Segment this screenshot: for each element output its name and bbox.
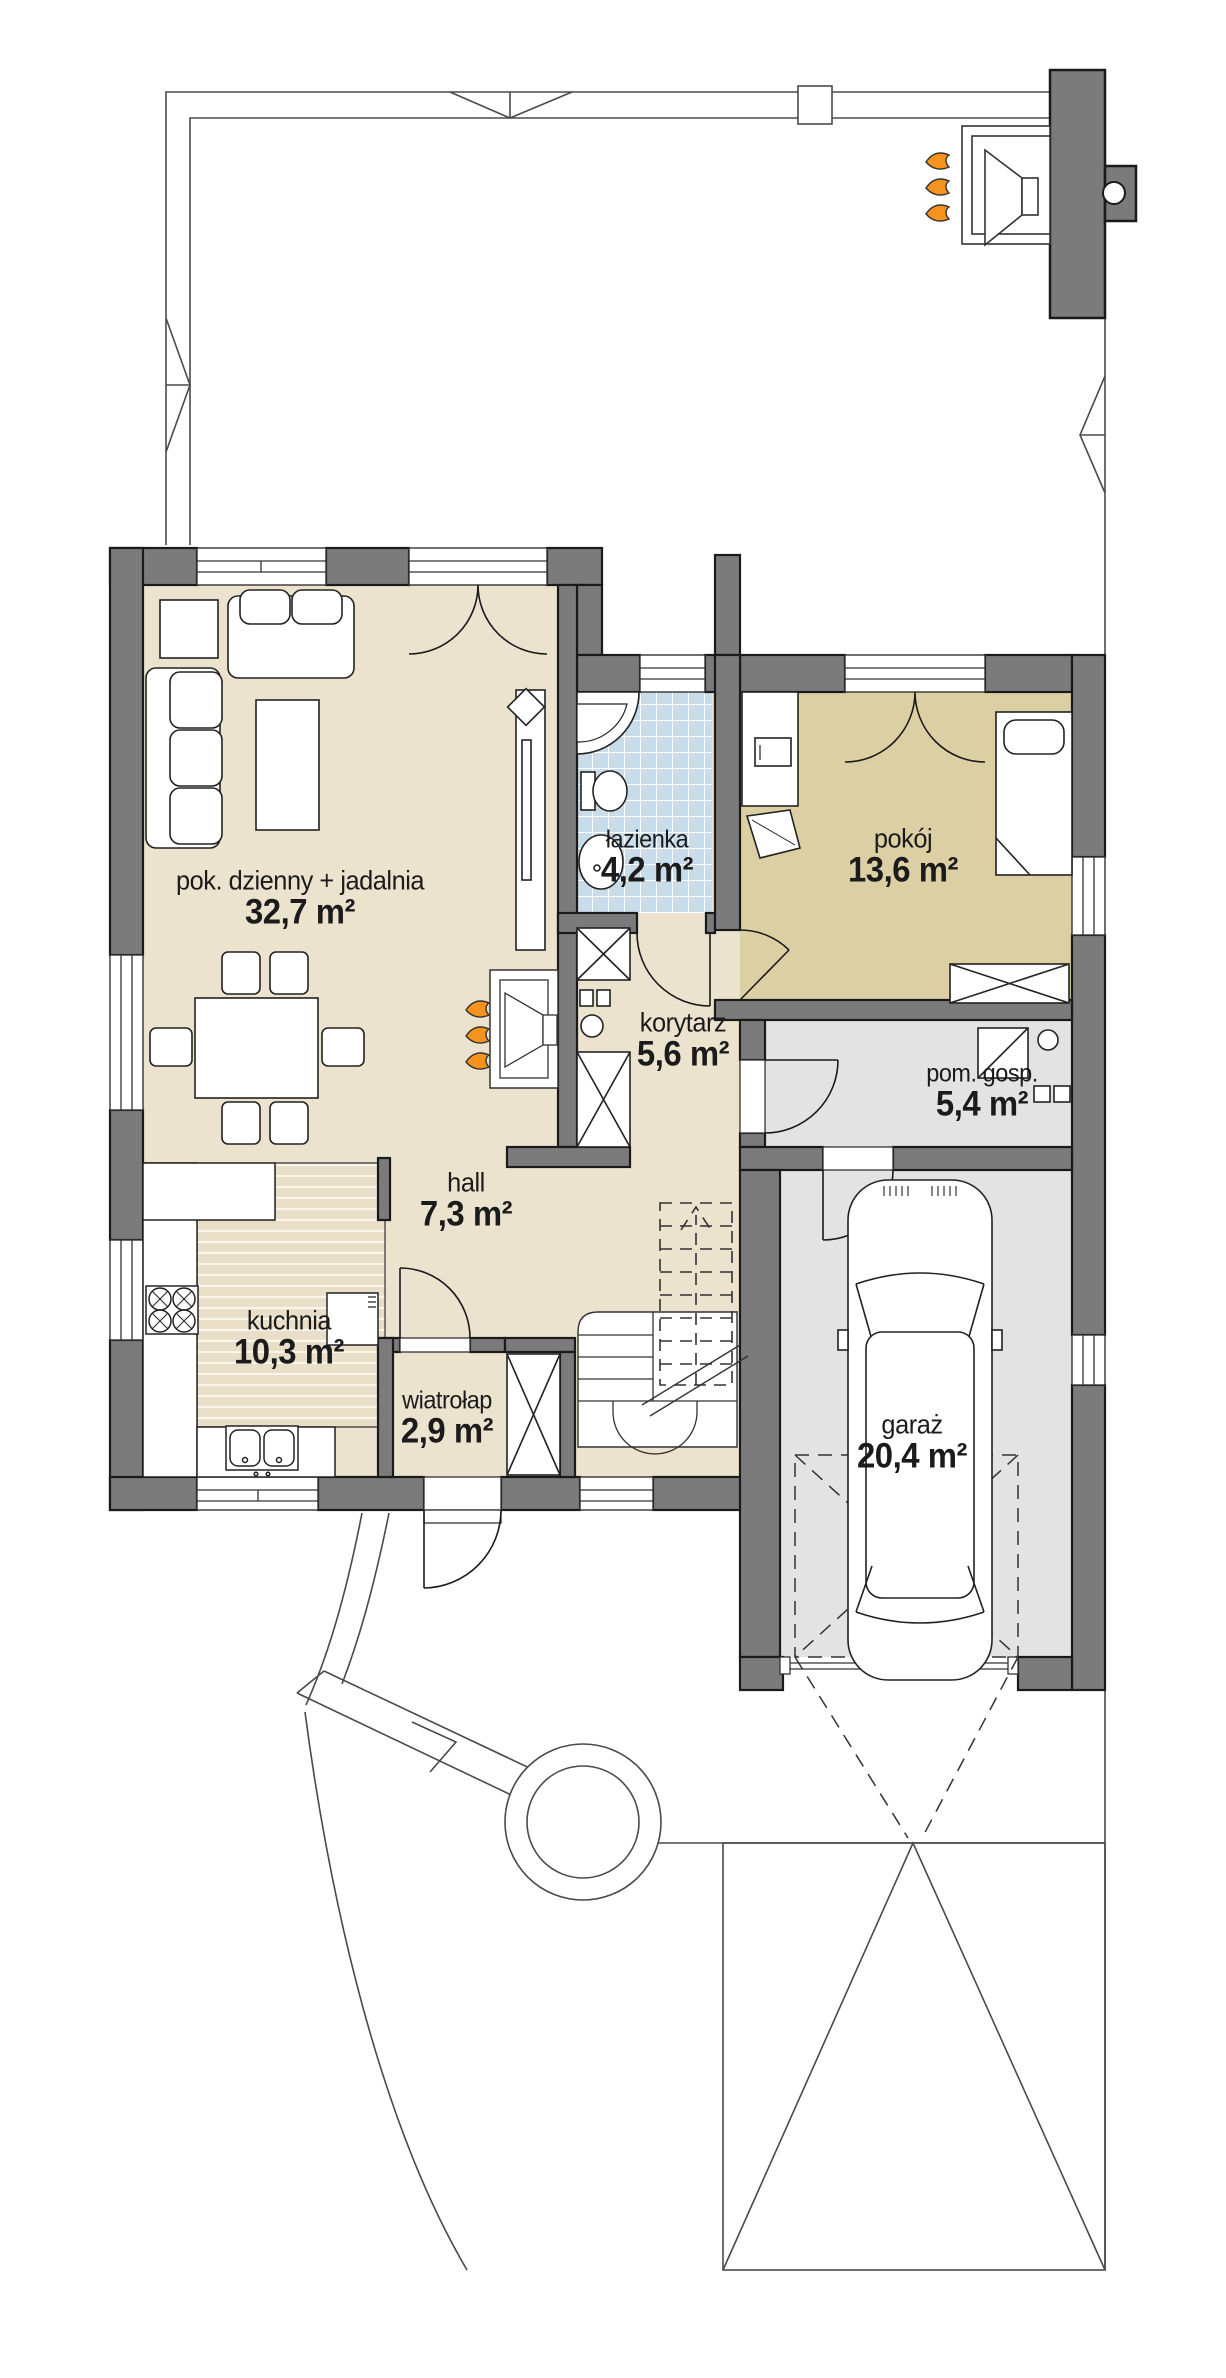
room-area: 5,4 m² [926,1087,1038,1124]
well-icon [505,1744,661,1900]
room-label-pok-dzienny: pok. dzienny + jadalnia 32,7 m² [176,866,424,931]
stove-icon [146,1286,198,1334]
room-area: 2,9 m² [401,1414,493,1451]
entry-wardrobe [507,1354,560,1475]
room-area: 5,6 m² [637,1037,729,1074]
room-label-hall: hall 7,3 m² [420,1168,512,1233]
floor-plan-page: pok. dzienny + jadalnia 32,7 m² łazienka… [0,0,1226,2378]
room-name: korytarz [637,1008,729,1036]
room-label-lazienka: łazienka 4,2 m² [601,827,693,890]
room-area: 13,6 m² [848,853,958,890]
room-name: garaż [857,1410,967,1438]
room-label-pom-gosp: pom. gosp. 5,4 m² [926,1061,1038,1124]
flame-icon [466,1001,489,1069]
room-area: 7,3 m² [420,1197,512,1234]
room-label-pokoj: pokój 13,6 m² [848,824,958,889]
room-area: 32,7 m² [176,895,424,932]
dresser-icon [950,964,1069,1003]
room-name: kuchnia [234,1306,344,1334]
grill-icon [962,126,1050,245]
room-label-kuchnia: kuchnia 10,3 m² [234,1306,344,1371]
grill-pillar [926,70,1136,318]
floor-plan-drawing [0,0,1226,2378]
terrace-outline [166,86,1050,545]
room-name: łazienka [601,827,693,853]
room-label-korytarz: korytarz 5,6 m² [637,1008,729,1073]
room-area: 20,4 m² [857,1439,967,1476]
room-area: 10,3 m² [234,1335,344,1372]
room-name: pok. dzienny + jadalnia [176,866,424,894]
room-name: pom. gosp. [926,1061,1038,1087]
room-label-garaz: garaż 20,4 m² [857,1410,967,1475]
bed-icon [996,712,1072,875]
room-name: hall [420,1168,512,1196]
room-area: 4,2 m² [601,853,693,890]
garden-path [297,1513,574,2270]
driveway [655,1843,1105,2270]
room-label-wiatrolap: wiatrołap 2,9 m² [401,1388,493,1451]
kitchen-sink-icon [226,1426,298,1476]
flame-icon [926,153,949,221]
toilet-icon [581,771,627,811]
room-name: wiatrołap [401,1388,493,1414]
room-name: pokój [848,824,958,852]
